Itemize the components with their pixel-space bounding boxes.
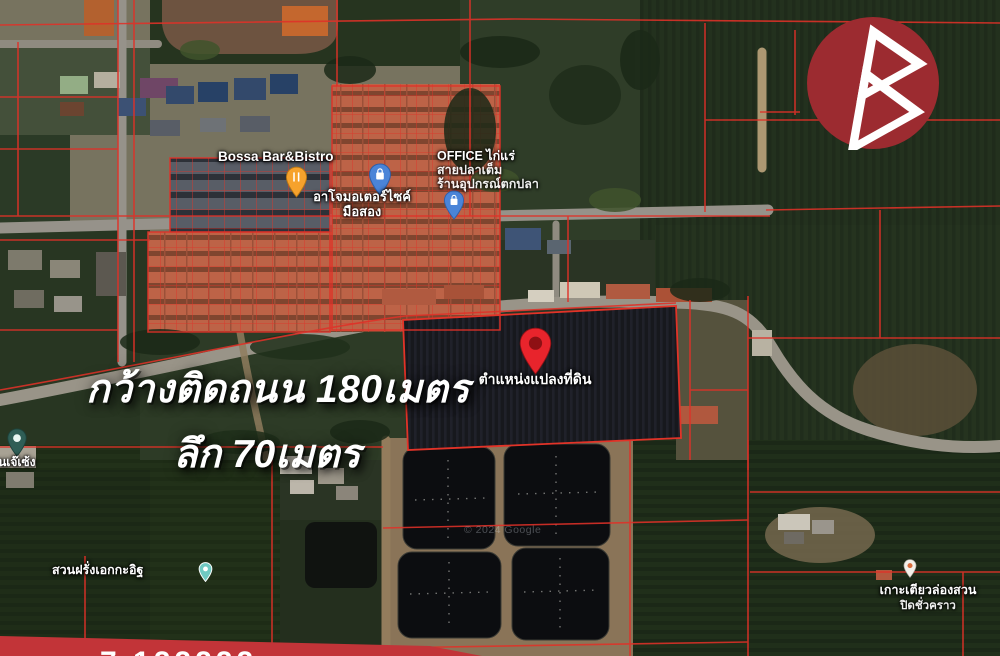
width-text: กว้างติดถนน 180เมตร [86,358,448,420]
poi-label-ajo: อาโจมอเตอร์ไซค์ มือสอง [300,190,424,219]
poi-label-line: สายปลาเต็ม [437,163,502,177]
land-listing-promo-image: Bossa Bar&Bistro อาโจมอเตอร์ไซค์ มือสอง … [0,0,1000,656]
poi-label-jeseng: สวนเจ๊เซ้ง [0,455,36,470]
plot-dimensions-text: กว้างติดถนน 180เมตร ลึก 70เมตร [86,358,448,485]
poi-pin-icon [903,559,917,583]
poi-label-office: OFFICE ไก่แร่ สายปลาเต็ม ร้านอุปกรณ์ตกปล… [437,149,539,191]
poi-label-line: อาโจมอเตอร์ไซค์ [313,189,411,204]
poi-label-line: เกาะเตียวล่องสวน [880,583,977,597]
poi-label-line: ปิดชั่วคราว [900,600,956,612]
poi-label-bossa: Bossa Bar&Bistro [218,150,334,165]
poi-label-line: OFFICE ไก่แร่ [437,149,515,163]
brand-logo [806,16,940,150]
shopping-pin-icon [443,190,465,225]
depth-text: ลึก 70เมตร [86,423,448,485]
poi-label-line: มือสอง [343,204,381,219]
poi-label-line: ร้านอุปกรณ์ตกปลา [437,177,539,191]
bottom-banner: 7 122222 [0,630,500,656]
plot-marker-label: ตำแหน่งแปลงที่ดิน [455,372,615,387]
poi-label-guava-farm: สวนฝรั่งเอกกะอิฐ [52,563,143,578]
poi-label-kohtoey: เกาะเตียวล่องสวน ปิดชั่วคราว [852,583,1000,613]
banner-partial-number: 7 122222 [100,646,257,656]
map-attribution: © 2024 Google [464,524,541,536]
poi-pin-icon [198,562,213,587]
